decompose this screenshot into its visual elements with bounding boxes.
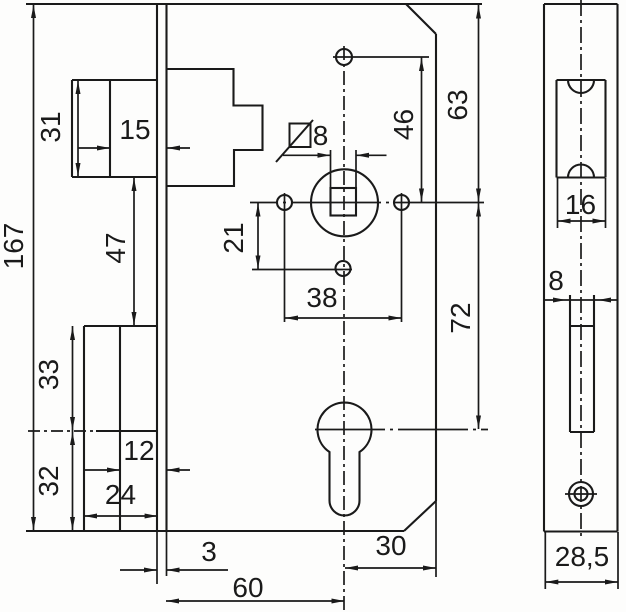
svg-text:60: 60 xyxy=(232,572,263,603)
svg-text:46: 46 xyxy=(388,109,419,140)
svg-text:30: 30 xyxy=(375,530,406,561)
svg-text:8: 8 xyxy=(313,120,329,151)
svg-text:31: 31 xyxy=(35,111,66,142)
svg-text:47: 47 xyxy=(100,232,131,263)
svg-text:21: 21 xyxy=(218,222,249,253)
svg-text:12: 12 xyxy=(123,435,154,466)
svg-text:15: 15 xyxy=(119,114,150,145)
svg-text:24: 24 xyxy=(105,479,136,510)
svg-text:38: 38 xyxy=(306,282,337,313)
svg-text:8: 8 xyxy=(548,265,564,296)
svg-text:72: 72 xyxy=(445,302,476,333)
svg-text:32: 32 xyxy=(33,465,64,496)
svg-text:167: 167 xyxy=(0,223,29,270)
svg-text:28,5: 28,5 xyxy=(555,541,610,572)
svg-text:16: 16 xyxy=(565,189,596,220)
svg-text:33: 33 xyxy=(33,359,64,390)
svg-text:3: 3 xyxy=(201,536,217,567)
svg-text:63: 63 xyxy=(442,89,473,120)
